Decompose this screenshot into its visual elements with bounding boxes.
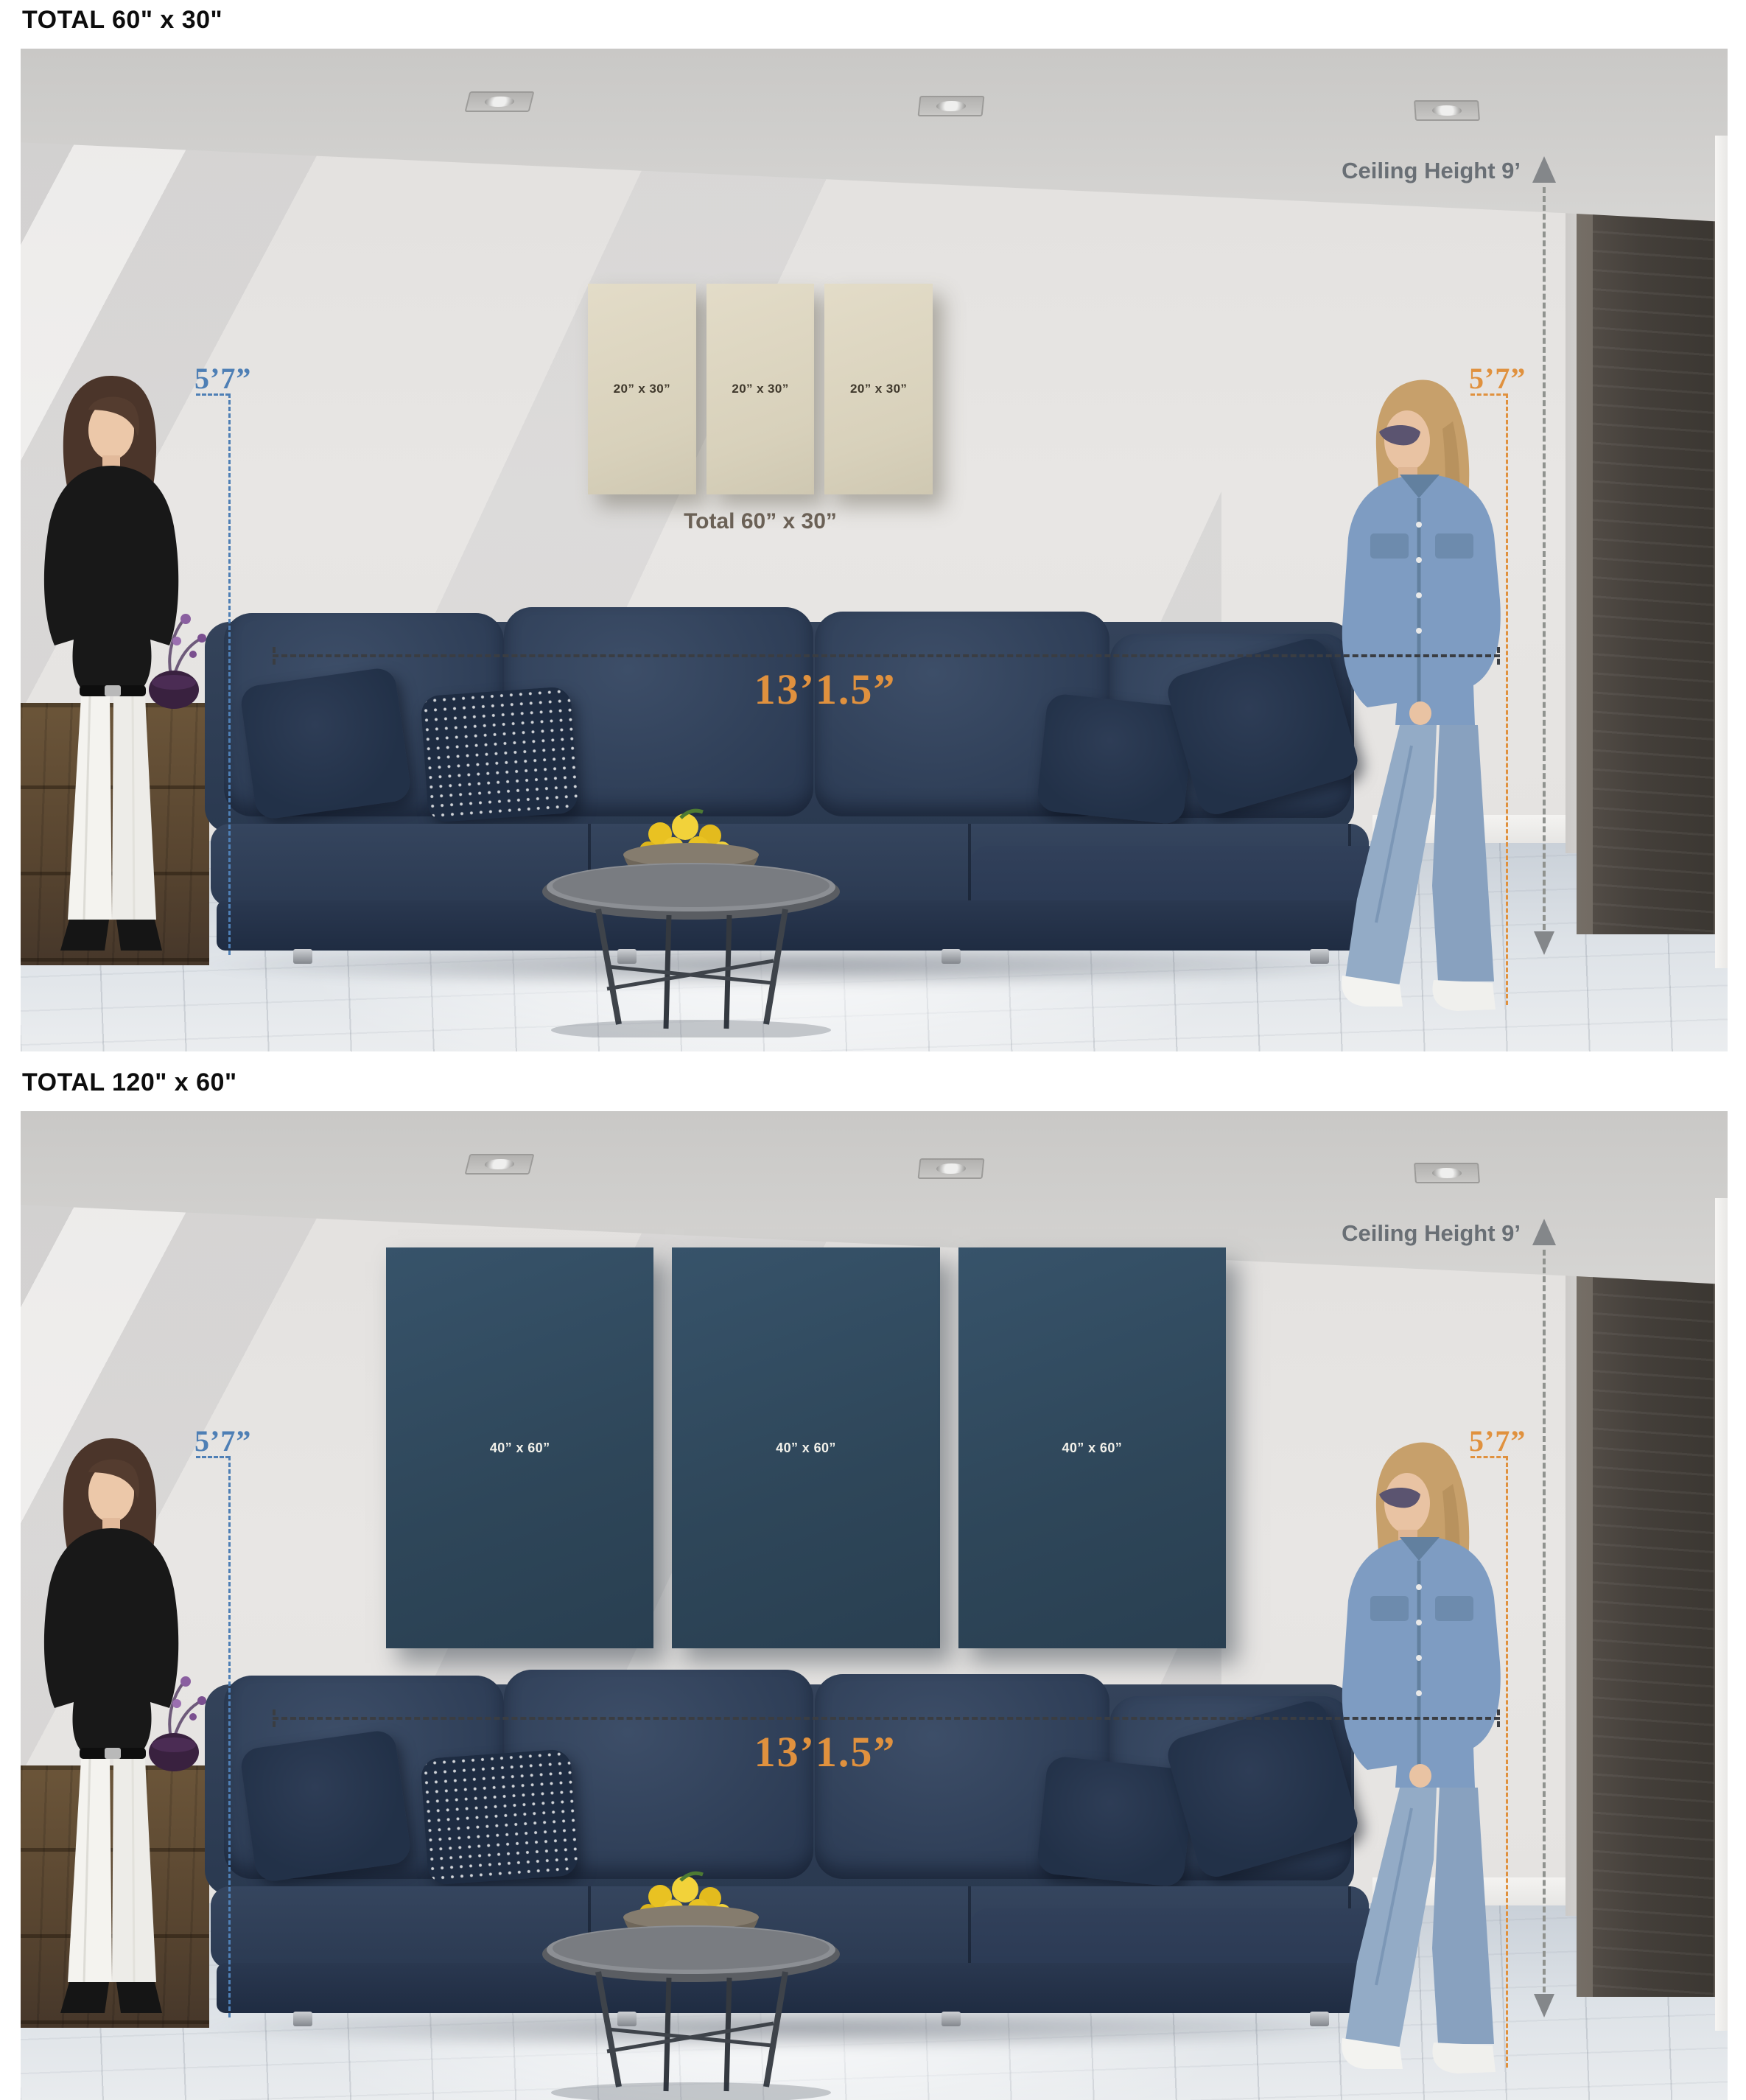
light-bulb (483, 1159, 515, 1169)
coffee-table (536, 805, 853, 1037)
person-height-label: 5’7” (194, 1424, 251, 1458)
person-right (1308, 1440, 1563, 2093)
dimension-tick (1497, 647, 1500, 665)
canvas-size-label: 20” x 30” (732, 382, 788, 396)
ceiling-height-label: Ceiling Height 9’ (1295, 158, 1521, 184)
width-dimension: 13’1.5” (273, 654, 1500, 657)
width-dimension-label: 13’1.5” (553, 1727, 1098, 1777)
light-bulb (936, 101, 966, 111)
arrow-down-icon (1534, 1994, 1554, 2017)
canvas-panel: 20” x 30” (824, 284, 933, 494)
person-left (22, 1434, 197, 2028)
coffee-table (536, 1867, 853, 2100)
canvas-group: 40” x 60” 40” x 60” 40” x 60” Total 120”… (386, 1247, 1226, 1648)
dimension-tick (1497, 1709, 1500, 1727)
total-size-label: Total 60” x 30” (588, 509, 933, 534)
person-height-label: 5’7” (1469, 1424, 1526, 1458)
dashed-line (1506, 1456, 1508, 2068)
height-annotation-left: 5’7” (194, 361, 251, 396)
canvas-panel: 40” x 60” (672, 1247, 939, 1648)
person-left (22, 371, 197, 965)
dimension-tick (273, 1709, 276, 1727)
canvas-group: 20” x 30” 20” x 30” 20” x 30” Total 60” … (588, 284, 933, 494)
dashed-line (196, 1456, 230, 1458)
dashed-vertical-line (1543, 187, 1546, 939)
width-dimension-label: 13’1.5” (553, 665, 1098, 714)
door-jamb (1715, 1198, 1728, 2031)
ceiling-light (918, 1158, 985, 1179)
canvas-panel: 20” x 30” (707, 284, 815, 494)
dashed-line (228, 393, 231, 955)
dashed-line (1470, 1456, 1507, 1458)
dashed-line (228, 1456, 231, 2017)
sofa-foot (942, 949, 961, 964)
dashed-line (1470, 393, 1507, 396)
canvas-panel: 40” x 60” (958, 1247, 1226, 1648)
room-scene-60x30: 20” x 30” 20” x 30” 20” x 30” Total 60” … (21, 49, 1728, 1051)
door (1593, 162, 1714, 934)
door-frame (1577, 1214, 1721, 1997)
person-height-label: 5’7” (194, 361, 251, 396)
light-bulb (1432, 1168, 1462, 1178)
throw-pillow (239, 1729, 412, 1883)
person-right (1308, 377, 1563, 1030)
section-title-120x60: TOTAL 120" x 60" (22, 1068, 237, 1097)
dashed-vertical-line (1543, 1250, 1546, 2001)
canvas-panel: 20” x 30” (588, 284, 696, 494)
height-annotation-left: 5’7” (194, 1424, 251, 1458)
section-title-60x30: TOTAL 60" x 30" (22, 6, 222, 35)
ceiling-light (465, 1154, 535, 1175)
canvas-size-label: 20” x 30” (850, 382, 907, 396)
light-bulb (483, 97, 515, 107)
door (1593, 1225, 1714, 1997)
door-frame (1577, 152, 1721, 934)
canvas-size-label: 20” x 30” (614, 382, 670, 396)
width-dimension: 13’1.5” (273, 1717, 1500, 1720)
canvas-size-label: 40” x 60” (1062, 1441, 1122, 1456)
arrow-down-icon (1534, 931, 1554, 955)
ceiling-light (918, 96, 985, 116)
light-bulb (1432, 105, 1462, 116)
door-jamb (1715, 136, 1728, 968)
canvas-size-label: 40” x 60” (490, 1441, 550, 1456)
ceiling-light (465, 91, 535, 112)
person-height-label: 5’7” (1469, 361, 1526, 396)
light-bulb (936, 1163, 966, 1174)
dashed-width-line (273, 1717, 1500, 1720)
height-annotation-right: 5’7” (1469, 361, 1526, 396)
canvas-size-label: 40” x 60” (776, 1441, 836, 1456)
sofa-foot (293, 949, 312, 964)
arrow-up-icon (1532, 156, 1556, 183)
ceiling-height-label: Ceiling Height 9’ (1295, 1220, 1521, 1247)
canvas-panel: 40” x 60” (386, 1247, 653, 1648)
arrow-up-icon (1532, 1219, 1556, 1245)
room-scene-120x60: 40” x 60” 40” x 60” 40” x 60” Total 120”… (21, 1111, 1728, 2100)
sofa-foot (293, 2012, 312, 2026)
ceiling-light (1414, 100, 1480, 121)
sofa-foot (942, 2012, 961, 2026)
height-annotation-right: 5’7” (1469, 1424, 1526, 1458)
dashed-line (196, 393, 230, 396)
dashed-line (1506, 393, 1508, 1005)
dimension-tick (273, 647, 276, 665)
dashed-width-line (273, 654, 1500, 657)
throw-pillow (239, 666, 412, 821)
ceiling-light (1414, 1163, 1480, 1183)
